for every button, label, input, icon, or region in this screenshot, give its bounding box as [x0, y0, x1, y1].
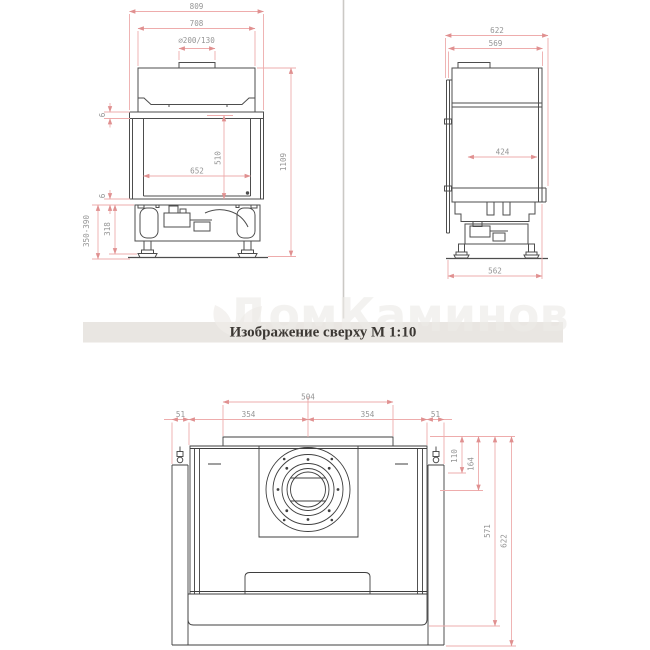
dim-label-frame-depth: 571: [483, 524, 492, 538]
top-view-dimensions: 504 51 354 354 51 110 164 571 622: [164, 393, 516, 647]
front-hood-inner: [138, 98, 255, 105]
dim-label-base-depth: 562: [488, 267, 502, 276]
side-glass-pane: [447, 80, 453, 233]
front-frame-band: [130, 112, 264, 119]
dim-label-width-seg-3: 354: [361, 410, 375, 419]
dim-label-gap-bottom: 6: [98, 193, 107, 198]
dim-label-plinth-range: 350-390: [82, 215, 91, 247]
top-left-panel: [172, 465, 188, 645]
dim-label-overall-depth: 622: [490, 26, 504, 35]
front-pilot-dot: [246, 191, 249, 194]
section-title: Изображение сверху М 1:10: [230, 325, 417, 341]
dim-label-opening-height: 510: [214, 151, 223, 165]
dim-label-plinth-height: 318: [103, 222, 112, 236]
dim-label-top-plate-width: 504: [301, 393, 315, 402]
dim-label-overall-width: 809: [190, 2, 204, 11]
top-front-frame: [188, 594, 427, 625]
dim-label-inner-depth: 424: [496, 148, 510, 157]
top-flue-collar: [266, 448, 350, 532]
dim-label-collar-center-offset: 164: [467, 457, 476, 471]
dim-label-width-seg-4: 51: [431, 410, 441, 419]
front-view-drawing: [128, 63, 268, 258]
dim-label-flue-diameter: ⌀200/130: [178, 36, 215, 45]
dim-label-body-depth: 569: [489, 39, 503, 48]
dim-label-width-seg-1: 51: [176, 410, 186, 419]
technical-drawing-page: 809 708 ⌀200/130 652 510 1109 6 6 350-39…: [0, 0, 650, 650]
front-gas-valve: [164, 206, 248, 231]
dim-label-gap-top: 6: [98, 112, 107, 117]
side-convection-profile: [455, 202, 535, 222]
top-screw-right: [433, 447, 439, 463]
side-body: [452, 68, 542, 202]
top-view-drawing: [172, 437, 444, 645]
side-view-drawing: [445, 63, 549, 259]
side-flue-stub: [458, 63, 490, 69]
front-plinth: [135, 205, 260, 241]
front-glass-box: [130, 119, 264, 200]
dim-label-top-overall-depth: 622: [500, 534, 509, 548]
drawing-canvas: 809 708 ⌀200/130 652 510 1109 6 6 350-39…: [0, 0, 650, 650]
front-feet: [138, 241, 257, 258]
top-right-panel: [428, 465, 444, 645]
top-plate: [223, 437, 393, 446]
dim-label-total-height: 1109: [279, 152, 288, 171]
dim-label-width-seg-2: 354: [242, 410, 256, 419]
dim-label-opening-width: 652: [190, 167, 204, 176]
dim-label-collar-rear-offset: 110: [450, 449, 459, 463]
side-feet: [454, 244, 539, 258]
front-flue-stub: [179, 63, 215, 69]
top-burner-tray: [245, 573, 370, 595]
front-left-blade: [140, 208, 158, 238]
top-screw-left: [177, 447, 183, 463]
front-hood: [138, 68, 255, 112]
dim-label-hood-width: 708: [190, 19, 204, 28]
